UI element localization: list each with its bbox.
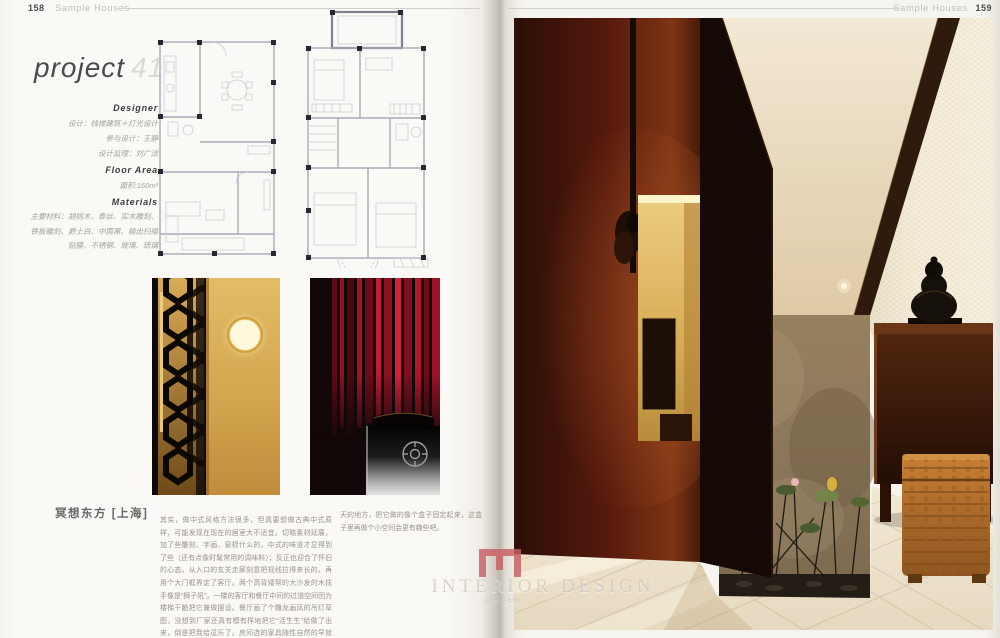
floor-plan-2: [298, 8, 434, 268]
watermark-subtitle: @mt-bbs: [455, 595, 551, 605]
supervise-line: 设计监理：刘广洁: [18, 146, 158, 161]
page-number-left: 158: [28, 3, 45, 13]
design-line: 设计：栈楼建筑＋灯光设计: [18, 116, 158, 131]
floor-area-label: Floor Area: [18, 165, 158, 175]
lattice-screen-photo: [152, 278, 280, 495]
watermark-logo-icon: [479, 549, 521, 579]
article-column-1: 其实，做中式风格方法很多，但真要想做古典中式原样，可能发现在现在的居室大不适宜。…: [160, 515, 332, 637]
assist-line: 参与设计：王静: [18, 131, 158, 146]
project-title: project41: [34, 52, 164, 84]
page-number-right: 159: [975, 3, 992, 13]
book-spread: 158 Sample Houses project41 Designer 设计：…: [0, 0, 1000, 638]
right-page: Sample Houses 159: [497, 0, 1000, 638]
floor-plan-1: [152, 22, 282, 260]
project-word: project: [34, 52, 125, 83]
materials-label: Materials: [18, 197, 158, 207]
project-info: Designer 设计：栈楼建筑＋灯光设计 参与设计：王静 设计监理：刘广洁 F…: [18, 99, 158, 254]
hallway-photo: [514, 18, 993, 630]
article-title: 冥想东方 [上海]: [55, 505, 148, 521]
floor-area-value: 面积:160m²: [18, 178, 158, 193]
article-column-2: 天的地方，把它做的像个盒子固定起来，这盒子里再做个小空间会更有趣些吧。: [340, 510, 482, 550]
red-curtain-photo: [310, 278, 440, 495]
page-gutter: [480, 0, 520, 638]
designer-label: Designer: [18, 103, 158, 113]
left-page: 158 Sample Houses project41 Designer 设计：…: [0, 0, 497, 638]
section-title-right: Sample Houses: [893, 3, 968, 14]
header-rule-right: [509, 8, 897, 9]
materials-text: 主要材料：胡桃木、泰丝、实木雕刻、铁板雕刻、爵士白、中国黑、输出扫描贴膜、不锈钢…: [30, 210, 158, 254]
